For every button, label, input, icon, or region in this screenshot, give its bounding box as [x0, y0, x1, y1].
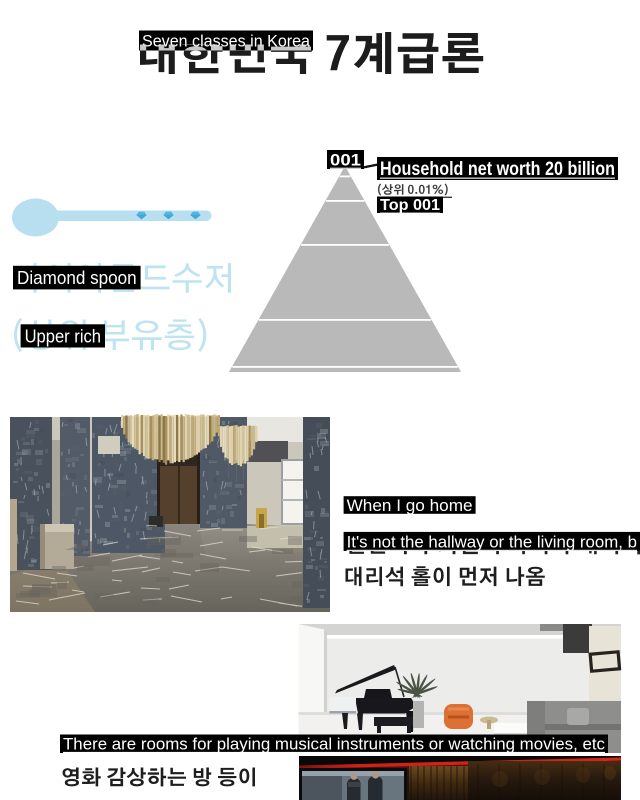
svg-text:It's not the hallway or the li: It's not the hallway or the living room,… [347, 532, 637, 551]
svg-text:001: 001 [330, 151, 361, 169]
svg-text:When I go home: When I go home [347, 497, 473, 515]
svg-text:Top 001: Top 001 [380, 197, 440, 214]
svg-text:Household net worth 20 billion: Household net worth 20 billion [380, 159, 615, 180]
svg-text:Diamond spoon: Diamond spoon [17, 267, 137, 288]
svg-text:There are rooms for playing mu: There are rooms for playing musical inst… [63, 736, 605, 754]
svg-text:Upper rich: Upper rich [25, 325, 101, 346]
